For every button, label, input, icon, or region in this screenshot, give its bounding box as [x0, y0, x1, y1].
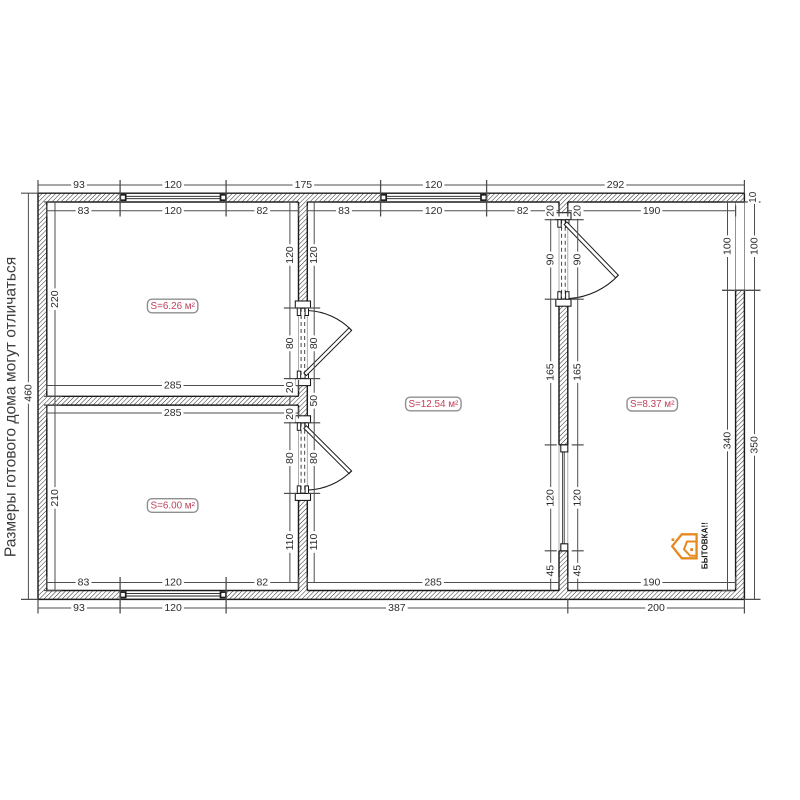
svg-text:175: 175	[295, 179, 313, 191]
svg-text:83: 83	[78, 205, 90, 217]
svg-text:165: 165	[572, 363, 584, 381]
svg-text:20: 20	[284, 381, 296, 393]
svg-text:285: 285	[164, 407, 182, 419]
svg-text:93: 93	[73, 602, 85, 614]
svg-text:20: 20	[284, 408, 296, 420]
svg-text:120: 120	[284, 246, 296, 264]
svg-text:460: 460	[22, 384, 34, 402]
svg-text:10: 10	[748, 191, 759, 203]
svg-text:387: 387	[388, 602, 406, 614]
svg-text:120: 120	[164, 179, 182, 191]
svg-text:190: 190	[643, 205, 661, 217]
svg-text:93: 93	[73, 179, 85, 191]
svg-text:210: 210	[49, 489, 61, 507]
svg-text:120: 120	[545, 489, 557, 507]
svg-text:340: 340	[722, 432, 734, 450]
svg-text:45: 45	[545, 565, 557, 577]
svg-text:120: 120	[164, 602, 182, 614]
svg-text:165: 165	[545, 363, 557, 381]
svg-text:50: 50	[308, 395, 320, 407]
svg-text:120: 120	[425, 179, 443, 191]
svg-text:120: 120	[164, 205, 182, 217]
svg-text:80: 80	[308, 452, 320, 464]
svg-text:S=6.26 м²: S=6.26 м²	[150, 301, 195, 312]
svg-text:80: 80	[308, 337, 320, 349]
svg-text:190: 190	[643, 577, 661, 589]
svg-text:90: 90	[572, 254, 584, 266]
svg-text:220: 220	[49, 290, 61, 308]
svg-text:82: 82	[256, 205, 268, 217]
svg-text:285: 285	[164, 380, 182, 392]
svg-text:82: 82	[256, 577, 268, 589]
svg-text:110: 110	[308, 533, 320, 550]
svg-text:90: 90	[545, 254, 557, 266]
svg-text:20: 20	[545, 205, 557, 217]
svg-text:82: 82	[517, 205, 529, 217]
svg-text:S=8.37 м²: S=8.37 м²	[630, 399, 675, 410]
svg-text:110: 110	[284, 533, 296, 550]
svg-text:120: 120	[308, 246, 320, 264]
svg-text:100: 100	[722, 237, 734, 255]
svg-text:120: 120	[425, 205, 443, 217]
svg-text:350: 350	[749, 436, 761, 454]
svg-text:285: 285	[424, 577, 442, 589]
svg-text:120: 120	[164, 577, 182, 589]
svg-text:Размеры готового дома могут от: Размеры готового дома могут отличаться	[3, 257, 20, 557]
svg-text:S=12.54 м²: S=12.54 м²	[408, 399, 459, 410]
svg-text:45: 45	[572, 565, 584, 577]
svg-text:БЫТОВКА!!: БЫТОВКА!!	[700, 522, 709, 569]
svg-text:83: 83	[338, 205, 350, 217]
svg-text:100: 100	[749, 237, 761, 255]
svg-text:20: 20	[572, 205, 584, 217]
svg-text:83: 83	[78, 577, 90, 589]
svg-text:200: 200	[647, 602, 665, 614]
svg-text:S=6.00 м²: S=6.00 м²	[150, 501, 195, 512]
svg-text:80: 80	[284, 337, 296, 349]
svg-text:80: 80	[284, 452, 296, 464]
svg-text:120: 120	[572, 489, 584, 507]
svg-text:292: 292	[607, 179, 625, 191]
